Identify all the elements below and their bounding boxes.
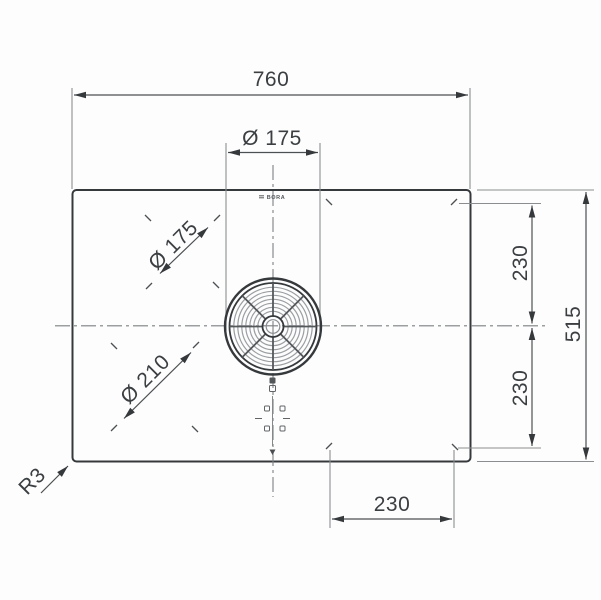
- control-power-icon: [270, 378, 276, 384]
- dimension-drawing: BORA 760 Ø 175 230 515 230 230 R3 Ø 175 …: [0, 0, 601, 600]
- corner-radius-label: R3: [14, 463, 50, 499]
- technical-drawing-canvas: BORA 760 Ø 175 230 515 230 230 R3 Ø 175 …: [0, 0, 601, 600]
- dim-inlet-diameter-label: Ø 175: [242, 127, 302, 150]
- dim-overall-depth-label: 515: [562, 306, 585, 343]
- dim-front-offset-label: 230: [509, 370, 532, 407]
- dim-bottom-offset-label: 230: [374, 493, 411, 516]
- bora-logo-text: BORA: [267, 195, 286, 201]
- dim-rear-offset-label: 230: [509, 245, 532, 282]
- dim-overall-width-label: 760: [253, 68, 290, 91]
